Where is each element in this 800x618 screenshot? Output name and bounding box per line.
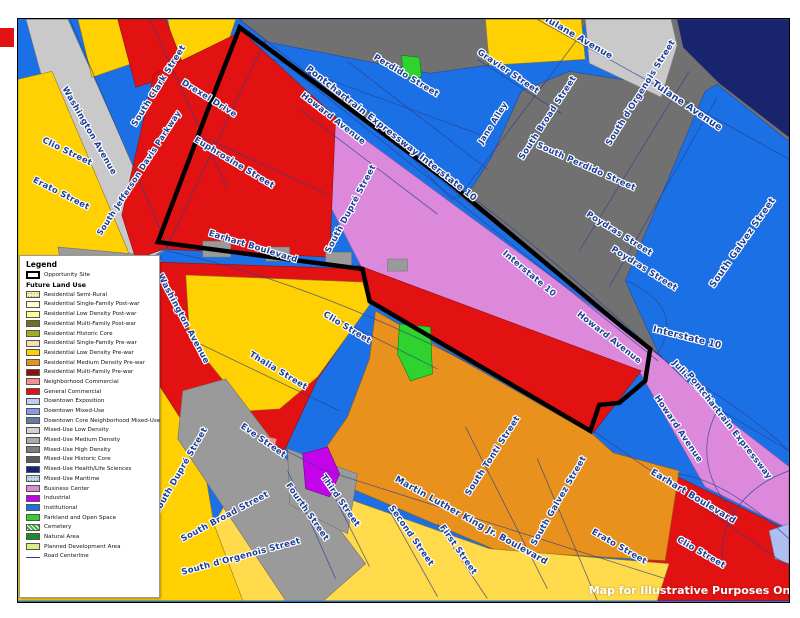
natural-area-label: Natural Area: [44, 534, 79, 540]
res-md-prewar-swatch: [26, 359, 40, 366]
legend-item-cemetery: Cemetery: [26, 523, 159, 531]
downtown-exposition-swatch: [26, 398, 40, 405]
legend-item-res-mf-postwar: Residential Multi-Family Post-war: [26, 320, 159, 328]
res-historic-core-swatch: [26, 330, 40, 337]
planned-dev-swatch: [26, 543, 40, 550]
res-mf-prewar-swatch: [26, 369, 40, 376]
downtown-mixed-use-swatch: [26, 408, 40, 415]
legend-item-res-semi-rural: Residential Semi-Rural: [26, 291, 159, 299]
legend-item-downtown-mixed-use: Downtown Mixed-Use: [26, 407, 159, 415]
legend-road-centerline: Road Centerline: [26, 552, 159, 560]
res-mf-prewar-label: Residential Multi-Family Pre-war: [44, 369, 133, 375]
natural-area-swatch: [26, 533, 40, 540]
legend-item-mu-health: Mixed-Use Health/Life Sciences: [26, 465, 159, 473]
legend-item-downtown-core-nmu: Downtown Core Neighborhood Mixed-Use: [26, 417, 159, 425]
legend-item-natural-area: Natural Area: [26, 533, 159, 541]
legend-item-planned-dev: Planned Development Area: [26, 543, 159, 551]
industrial-swatch: [26, 495, 40, 502]
region-neighborhood-commercial: [266, 437, 277, 448]
legend-title: Legend: [26, 260, 159, 269]
parkland-label: Parkland and Open Space: [44, 515, 116, 521]
downtown-core-nmu-label: Downtown Core Neighborhood Mixed-Use: [44, 418, 160, 424]
opportunity-site-swatch: [26, 271, 40, 279]
industrial-label: Industrial: [44, 495, 70, 501]
legend-item-mu-maritime: Mixed-Use Maritime: [26, 475, 159, 483]
mu-health-swatch: [26, 466, 40, 473]
mu-health-label: Mixed-Use Health/Life Sciences: [44, 466, 131, 472]
legend-item-mu-med: Mixed-Use Medium Density: [26, 436, 159, 444]
cemetery-swatch: [26, 524, 40, 531]
map-note: Map for Illustrative Purposes Only: [589, 584, 790, 597]
legend-item-parkland: Parkland and Open Space: [26, 514, 159, 522]
general-commercial-swatch: [26, 388, 40, 395]
res-sf-prewar-label: Residential Single-Family Pre-war: [44, 340, 137, 346]
neighborhood-commercial-swatch: [26, 378, 40, 385]
parkland-swatch: [26, 514, 40, 521]
downtown-core-nmu-swatch: [26, 417, 40, 424]
neighborhood-commercial-label: Neighborhood Commercial: [44, 379, 119, 385]
legend-item-res-sf-prewar: Residential Single-Family Pre-war: [26, 339, 159, 347]
mu-historic-swatch: [26, 456, 40, 463]
mu-maritime-label: Mixed-Use Maritime: [44, 476, 100, 482]
legend-panel: Legend Opportunity Site Future Land Use …: [19, 255, 160, 598]
institutional-swatch: [26, 504, 40, 511]
region-yellow-tulane: [485, 19, 585, 65]
map-page: Washington AvenueSouth Clark StreetDrexe…: [0, 0, 800, 618]
legend-opportunity-site: Opportunity Site: [26, 271, 159, 279]
business-center-label: Business Center: [44, 486, 89, 492]
legend-item-institutional: Institutional: [26, 504, 159, 512]
res-ld-postwar-label: Residential Low Density Post-war: [44, 311, 136, 317]
legend-item-mu-low: Mixed-Use Low Density: [26, 426, 159, 434]
legend-item-mu-historic: Mixed-Use Historic Core: [26, 455, 159, 463]
business-center-swatch: [26, 485, 40, 492]
mu-med-swatch: [26, 437, 40, 444]
res-historic-core-label: Residential Historic Core: [44, 331, 113, 337]
mu-maritime-swatch: [26, 475, 40, 482]
region-parkland-perdido: [402, 55, 422, 77]
legend-item-res-ld-prewar: Residential Low Density Pre-war: [26, 349, 159, 357]
legend-item-mu-high: Mixed-Use High Density: [26, 446, 159, 454]
downtown-exposition-label: Downtown Exposition: [44, 398, 104, 404]
legend-item-industrial: Industrial: [26, 494, 159, 502]
res-sf-postwar-label: Residential Single-Family Post-war: [44, 301, 140, 307]
downtown-mixed-use-label: Downtown Mixed-Use: [44, 408, 104, 414]
legend-item-downtown-exposition: Downtown Exposition: [26, 397, 159, 405]
legend-item-res-md-prewar: Residential Medium Density Pre-war: [26, 359, 159, 367]
mu-low-swatch: [26, 427, 40, 434]
legend-section-header: Future Land Use: [26, 281, 159, 289]
legend-item-res-mf-prewar: Residential Multi-Family Pre-war: [26, 368, 159, 376]
res-mf-postwar-swatch: [26, 320, 40, 327]
legend-item-res-sf-postwar: Residential Single-Family Post-war: [26, 300, 159, 308]
legend-item-business-center: Business Center: [26, 484, 159, 492]
map-canvas: Washington AvenueSouth Clark StreetDrexe…: [17, 18, 790, 603]
legend-items: Residential Semi-RuralResidential Single…: [26, 291, 159, 551]
res-ld-postwar-swatch: [26, 311, 40, 318]
cemetery-label: Cemetery: [44, 524, 71, 530]
res-sf-prewar-swatch: [26, 340, 40, 347]
legend-item-neighborhood-commercial: Neighborhood Commercial: [26, 378, 159, 386]
general-commercial-label: General Commercial: [44, 389, 101, 395]
road-centerline-swatch: [26, 557, 40, 558]
res-semi-rural-label: Residential Semi-Rural: [44, 292, 107, 298]
res-sf-postwar-swatch: [26, 301, 40, 308]
res-ld-prewar-label: Residential Low Density Pre-war: [44, 350, 134, 356]
res-semi-rural-swatch: [26, 291, 40, 298]
mu-high-swatch: [26, 446, 40, 453]
legend-item-res-ld-postwar: Residential Low Density Post-war: [26, 310, 159, 318]
mu-high-label: Mixed-Use High Density: [44, 447, 111, 453]
map-edge-parcel: [0, 28, 14, 47]
res-ld-prewar-swatch: [26, 349, 40, 356]
res-mf-postwar-label: Residential Multi-Family Post-war: [44, 321, 136, 327]
mu-historic-label: Mixed-Use Historic Core: [44, 456, 111, 462]
mu-low-label: Mixed-Use Low Density: [44, 427, 109, 433]
institutional-label: Institutional: [44, 505, 77, 511]
res-md-prewar-label: Residential Medium Density Pre-war: [44, 360, 145, 366]
legend-item-general-commercial: General Commercial: [26, 388, 159, 396]
mu-med-label: Mixed-Use Medium Density: [44, 437, 120, 443]
planned-dev-label: Planned Development Area: [44, 544, 121, 550]
legend-item-res-historic-core: Residential Historic Core: [26, 329, 159, 337]
